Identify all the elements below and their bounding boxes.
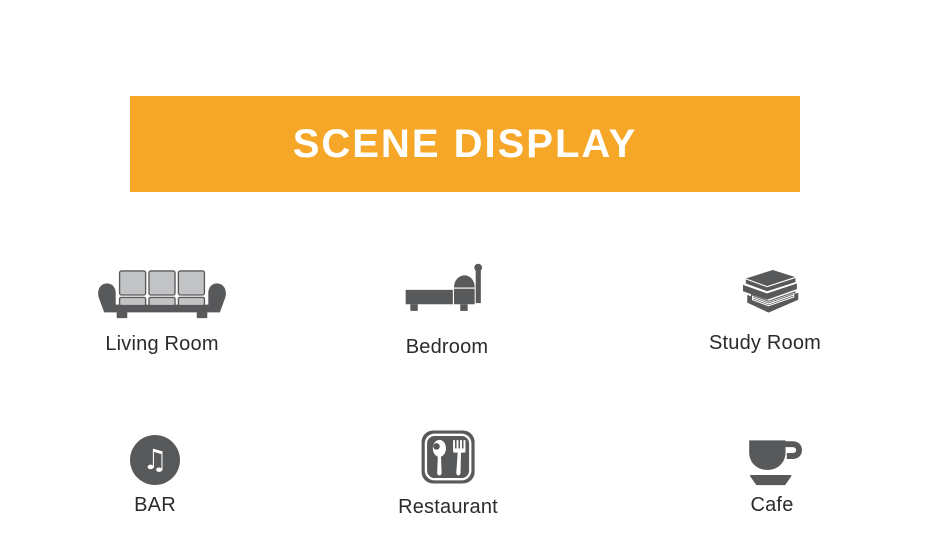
scene-item-bar[interactable]: ♫ BAR [130,435,180,517]
scene-label: Bedroom [406,336,489,359]
scene-label: BAR [134,494,176,517]
scene-label: Living Room [105,333,218,356]
music-note-icon: ♫ [130,435,180,485]
books-icon [726,261,804,323]
scene-display-banner: SCENE DISPLAY [130,96,800,192]
cutlery-icon [421,430,475,484]
music-note-glyph: ♫ [142,446,167,474]
bed-icon [401,262,493,313]
scene-item-restaurant[interactable]: Restaurant [398,430,498,519]
scene-label: Cafe [750,494,793,517]
scene-item-study-room[interactable]: Study Room [709,261,821,355]
coffee-cup-icon [740,437,804,486]
scene-item-living-room[interactable]: Living Room [94,268,230,356]
scene-label: Study Room [709,332,821,355]
scene-label: Restaurant [398,496,498,519]
scene-item-cafe[interactable]: Cafe [740,437,804,517]
scene-item-bedroom[interactable]: Bedroom [401,262,493,359]
banner-title: SCENE DISPLAY [293,122,638,167]
sofa-icon [94,268,230,322]
